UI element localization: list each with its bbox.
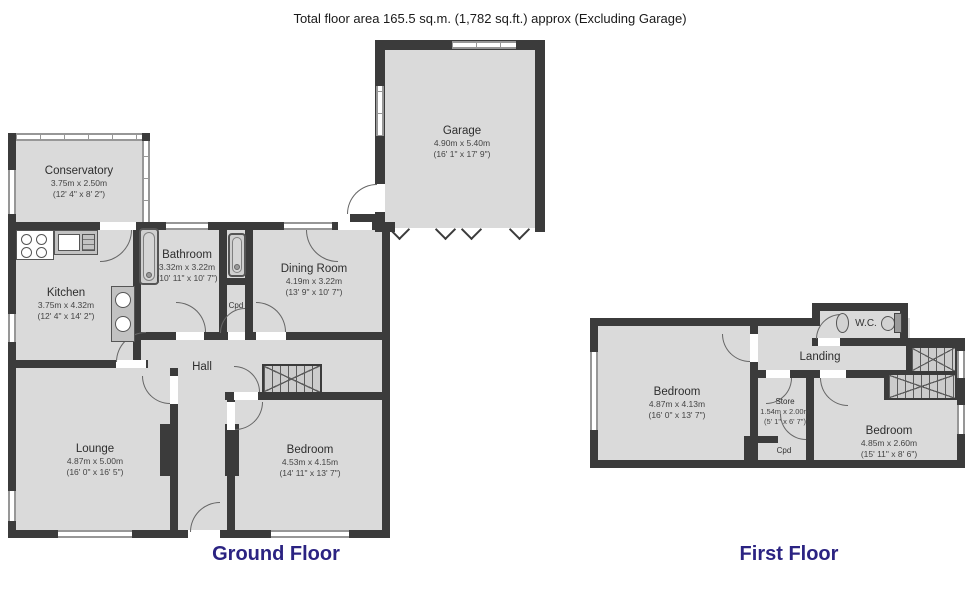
landing-label: Landing [770,350,870,364]
hob-ring-icon [36,247,47,258]
room-name: Dining Room [254,262,374,276]
wc-label: W.C. [848,318,884,329]
door-opening [227,402,235,430]
lounge-side-window [8,491,16,521]
conservatory-window [16,133,142,141]
wall [382,222,390,538]
bedroom2-label: Bedroom 4.85m x 2.60m (15' 11" x 8' 6") [824,424,954,460]
door-opening [234,392,258,400]
conservatory-window [8,170,16,214]
room-dim-metric: 4.90m x 5.40m [402,138,522,149]
store-label: Store 1.54m x 2.00m (5' 1" x 6' 7") [745,397,825,427]
hob-ring-icon [21,247,32,258]
room-dim-imperial: (16' 0" x 16' 5") [35,467,155,478]
room-dim-imperial: (16' 0" x 13' 7") [612,410,742,421]
room-name: Landing [770,350,870,364]
room-dim-imperial: (16' 1" x 17' 9") [402,149,522,160]
kitchen-label: Kitchen 3.75m x 4.32m (12' 4" x 14' 2") [6,286,126,322]
stairs-window [957,351,965,378]
door-opening [338,222,372,230]
room-dim-imperial: (10' 11" x 10' 7") [127,273,247,284]
hob-ring-icon [21,234,32,245]
lounge-window [58,530,132,538]
room-name: Kitchen [6,286,126,300]
cpd-label: Cpd [766,446,802,455]
hob-ring-icon [36,234,47,245]
total-area-title: Total floor area 165.5 sq.m. (1,782 sq.f… [0,11,980,26]
conservatory-label: Conservatory 3.75m x 2.50m (12' 4" x 8' … [19,164,139,200]
cpd-label: Cpd [218,301,254,310]
stairs-upper-run [910,346,957,373]
wall [812,303,908,311]
stairs-lower-run [887,373,957,400]
ground-floor-label: Ground Floor [156,543,396,566]
room-dim-metric: 3.75m x 4.32m [6,300,126,311]
floorplan-canvas: Total floor area 165.5 sq.m. (1,782 sq.f… [0,0,980,601]
toilet-cistern-icon [894,313,902,333]
conservatory-window [142,141,150,223]
first-floor-label: First Floor [669,543,909,566]
bathroom-window [166,222,208,230]
room-name: Garage [402,124,522,138]
wall [744,436,758,468]
bedroom-label: Bedroom 4.53m x 4.15m (14' 11" x 13' 7") [245,443,375,479]
chimney-breast [225,424,239,476]
room-name: Bedroom [824,424,954,438]
drainer-icon [82,234,95,251]
room-dim-metric: 3.32m x 3.22m [127,262,247,273]
room-dim-imperial: (13' 9" x 10' 7") [254,287,374,298]
door-opening [750,334,758,362]
door-opening [766,370,790,378]
room-dim-imperial: (12' 4" x 8' 2") [19,189,139,200]
room-dim-imperial: (5' 1" x 6' 7") [745,417,825,427]
bathroom-label: Bathroom 3.32m x 3.22m (10' 11" x 10' 7"… [127,248,247,284]
door-opening [228,332,245,340]
room-dim-metric: 4.85m x 2.60m [824,438,954,449]
door-opening [176,332,204,340]
wall [350,214,384,222]
room-dim-metric: 4.87m x 4.13m [612,399,742,410]
room-name: Lounge [35,442,155,456]
room-dim-imperial: (14' 11" x 13' 7") [245,468,375,479]
wall [900,338,965,346]
room-dim-metric: 4.19m x 3.22m [254,276,374,287]
dining-room-label: Dining Room 4.19m x 3.22m (13' 9" x 10' … [254,262,374,298]
bedroom1-label: Bedroom 4.87m x 4.13m (16' 0" x 13' 7") [612,385,742,421]
bedroom1-window [590,352,598,430]
room-name: Bedroom [612,385,742,399]
dining-window [284,222,332,230]
stairs [262,364,322,394]
chimney-breast [160,424,178,476]
door-opening [818,338,840,346]
room-name: Store [745,397,825,407]
room-dim-metric: 1.54m x 2.00m [745,407,825,417]
room-name: Hall [162,360,242,374]
lounge-label: Lounge 4.87m x 5.00m (16' 0" x 16' 5") [35,442,155,478]
wall [535,40,545,232]
wall [142,133,150,141]
wall [590,318,820,326]
room-dim-imperial: (15' 11" x 8' 6") [824,449,954,460]
room-dim-metric: 4.87m x 5.00m [35,456,155,467]
hall-label: Hall [162,360,242,374]
garage-label: Garage 4.90m x 5.40m (16' 1" x 17' 9") [402,124,522,160]
door-opening [170,376,178,404]
room-name: Conservatory [19,164,139,178]
sink-icon [58,234,80,251]
room-dim-metric: 3.75m x 2.50m [19,178,139,189]
bedroom2-window [957,405,965,434]
wall [590,460,965,468]
bedroom-window [271,530,349,538]
room-name: Bathroom [127,248,247,262]
door-opening [100,222,136,230]
door-opening [820,370,846,378]
garage-window [376,86,384,136]
door-arc [347,184,377,214]
room-dim-metric: 4.53m x 4.15m [245,457,375,468]
door-opening [256,332,286,340]
room-name: Bedroom [245,443,375,457]
room-dim-imperial: (12' 4" x 14' 2") [6,311,126,322]
garage-window [452,41,516,49]
